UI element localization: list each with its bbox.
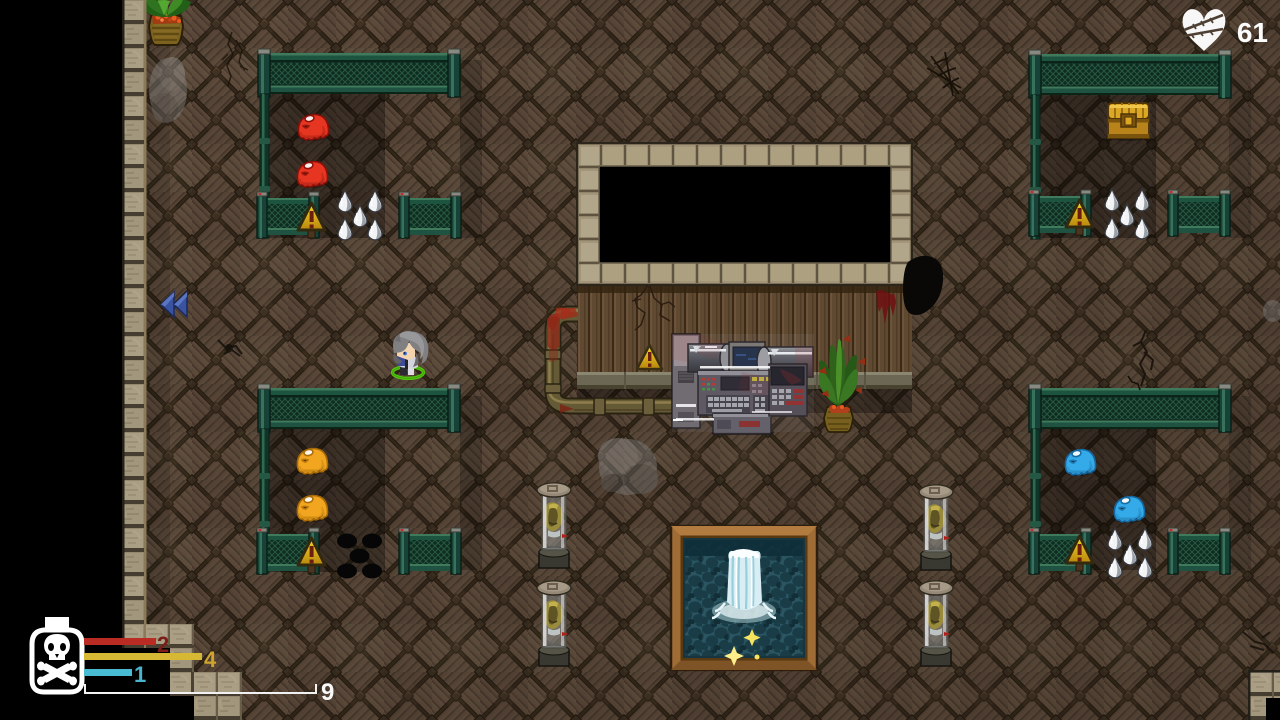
svg-text:61: 61 bbox=[1237, 17, 1268, 48]
svg-text:1: 1 bbox=[134, 662, 146, 687]
svg-text:4: 4 bbox=[204, 647, 217, 672]
svg-text:9: 9 bbox=[321, 679, 334, 706]
